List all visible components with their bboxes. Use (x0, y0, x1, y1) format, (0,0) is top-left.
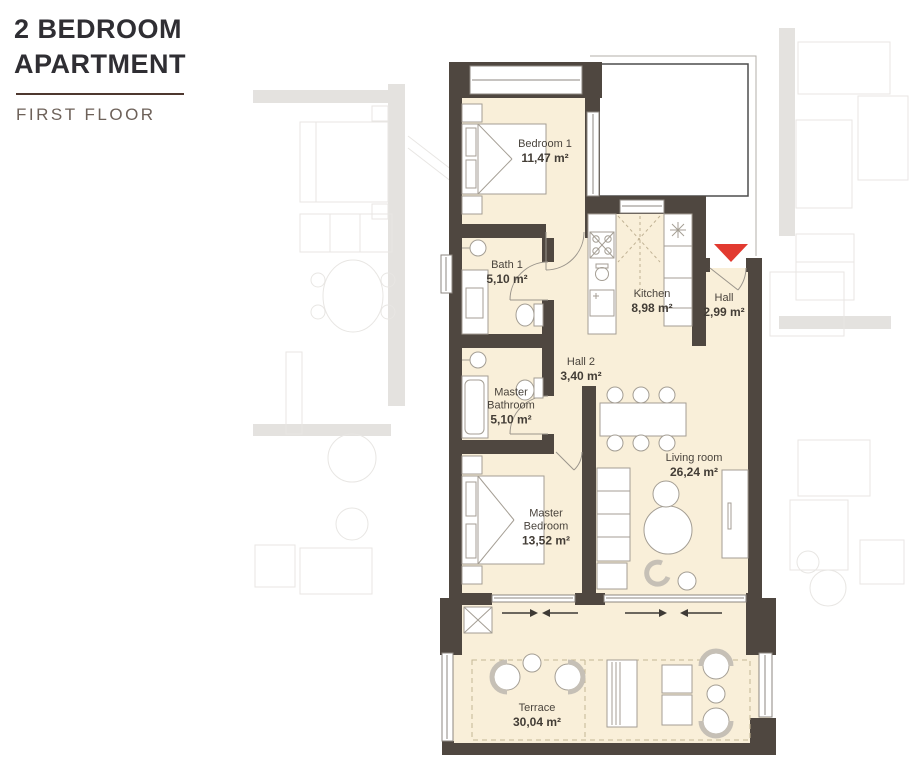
room-label-kitchen: Kitchen 8,98 m² (631, 288, 672, 316)
sun-lounger-icon (607, 660, 637, 727)
adjacent-unit-right (770, 28, 908, 606)
oven-star-icon (670, 222, 686, 238)
room-label-bath1: Bath 1 5,10 m² (486, 259, 527, 287)
terrace-table-icon (662, 695, 692, 725)
vanity-icon (462, 270, 488, 334)
terrace-table-icon (662, 665, 692, 693)
window-bedroom1-patio (587, 112, 599, 196)
room-label-hall: Hall 2,99 m² (703, 292, 744, 320)
window-bedroom1-top (470, 66, 582, 94)
room-label-hall2: Hall 2 3,40 m² (560, 356, 601, 384)
sliding-door-living-room (604, 595, 746, 602)
plan-title: 2 BEDROOM APARTMENT (14, 12, 259, 82)
window-kitchen (620, 200, 664, 213)
sink-icon (470, 352, 486, 368)
toilet-icon (516, 304, 543, 326)
adjacent-unit-left (253, 84, 452, 594)
room-label-master-bathroom: Master Bathroom 5,10 m² (479, 386, 543, 427)
window-terrace-right (759, 653, 772, 717)
entrance-arrow-icon (714, 244, 748, 262)
room-label-terrace: Terrace 30,04 m² (513, 702, 561, 730)
side-table-icon (523, 654, 541, 672)
room-label-bedroom1: Bedroom 1 11,47 m² (518, 138, 572, 166)
sofa-icon (597, 468, 630, 589)
column-hatched (464, 607, 492, 633)
sink-icon (470, 240, 486, 256)
title-divider (16, 93, 184, 95)
window-bath1-left (441, 255, 452, 293)
tv-unit-icon (722, 470, 748, 558)
floor-plan-page: 2 BEDROOM APARTMENT FIRST FLOOR Bedroom … (0, 0, 911, 777)
side-table-icon (707, 685, 725, 703)
sliding-door-master-bedroom (492, 595, 575, 602)
room-label-master-bedroom: Master Bedroom 13,52 m² (514, 507, 578, 548)
window-terrace-left (442, 653, 453, 741)
dining-table-icon (600, 387, 686, 451)
room-label-living-room: Living room 26,24 m² (666, 452, 723, 480)
floor-subtitle: FIRST FLOOR (16, 105, 156, 125)
